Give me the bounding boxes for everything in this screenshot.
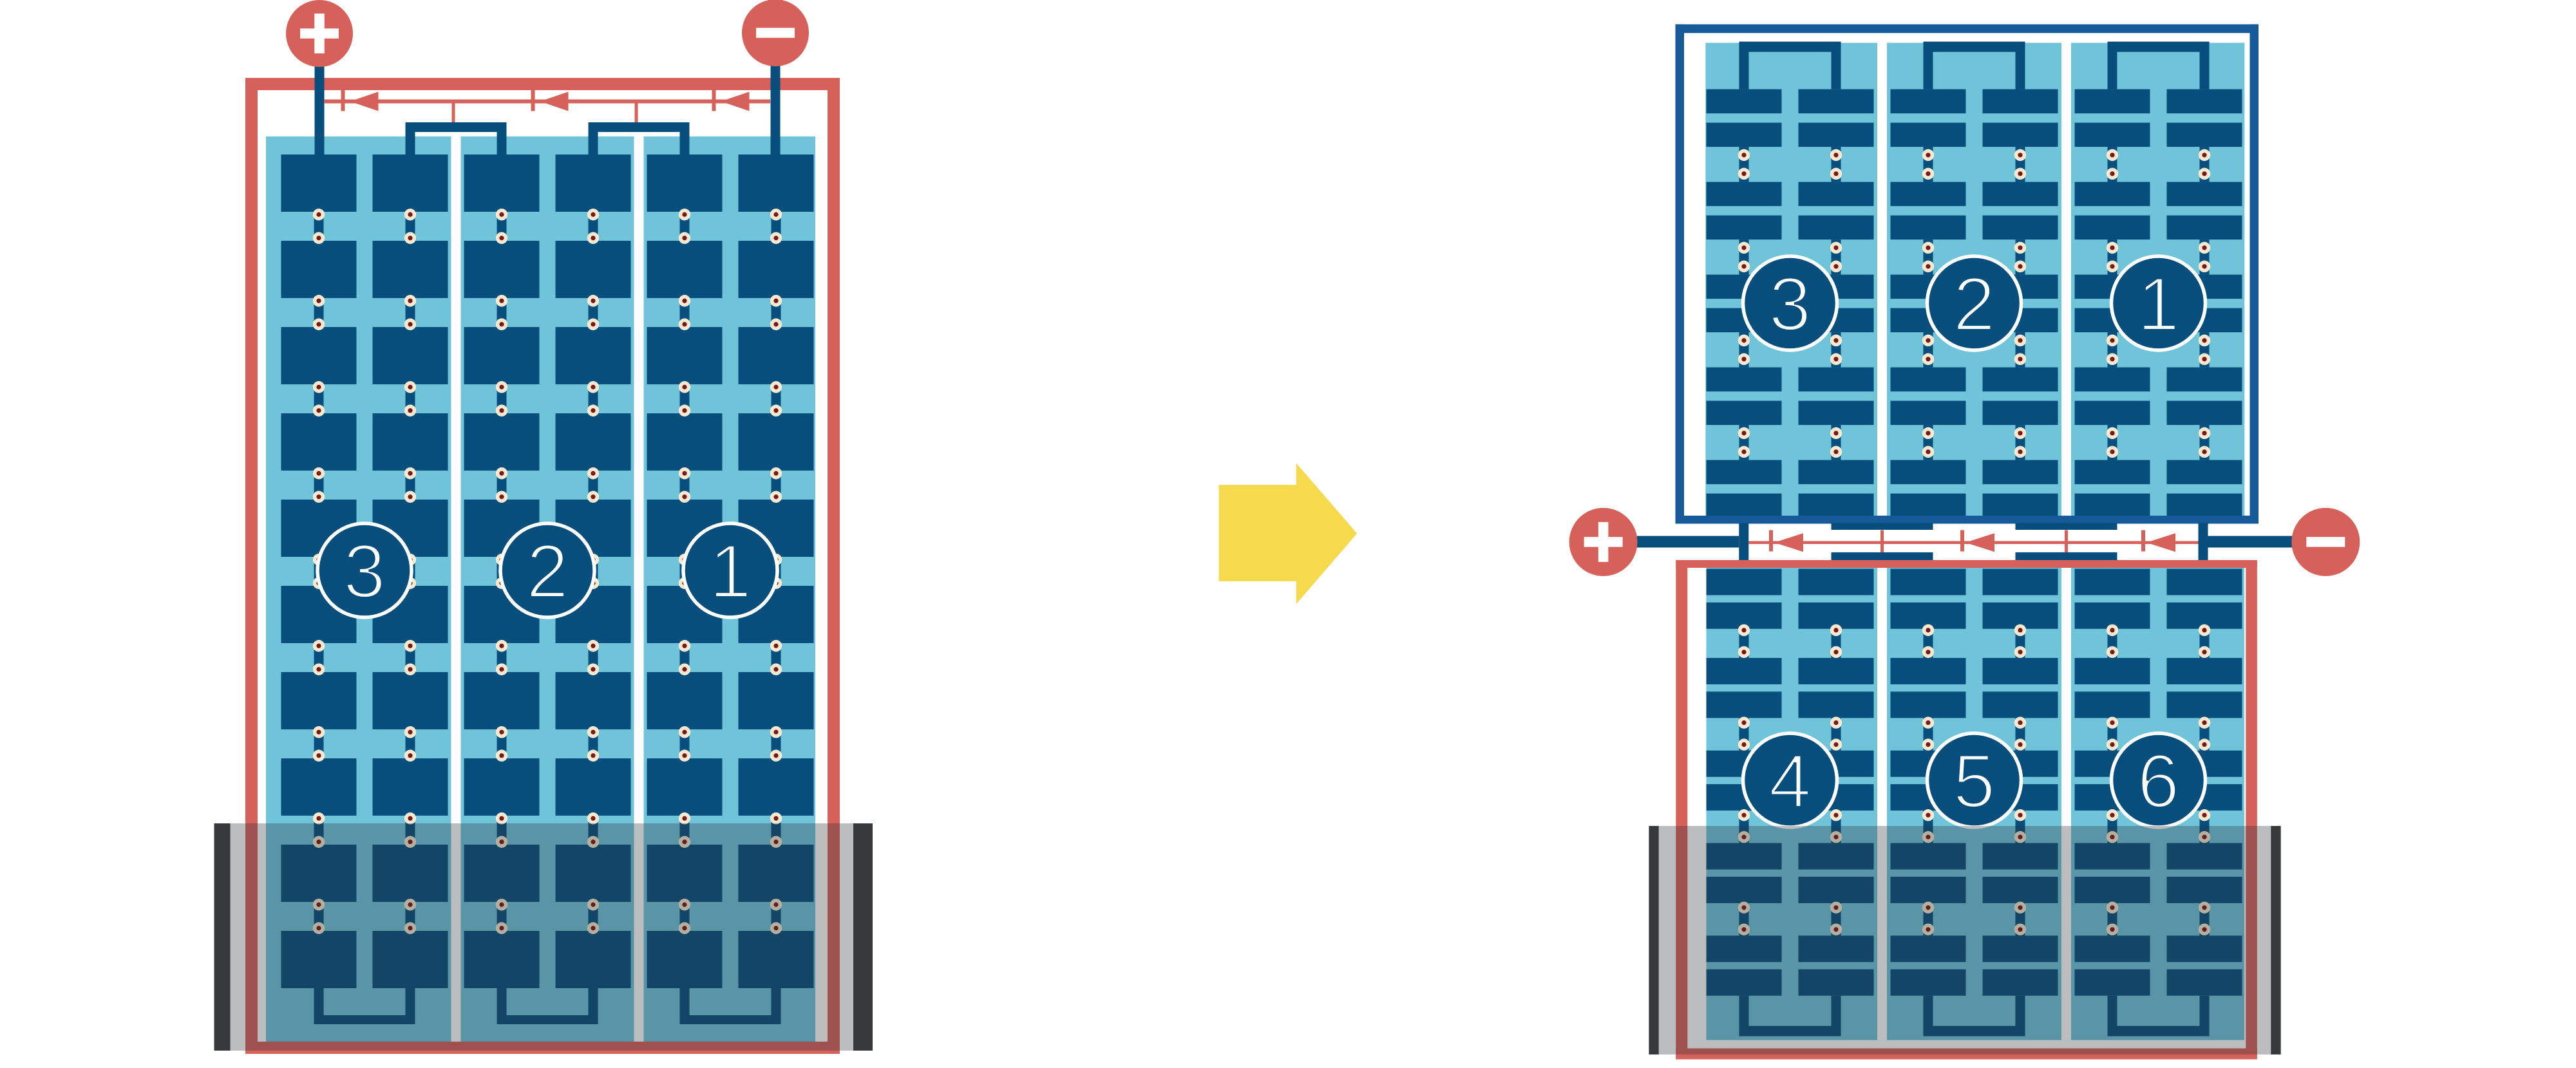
svg-text:2: 2 (1953, 262, 1996, 347)
svg-text:2: 2 (526, 529, 569, 614)
svg-text:1: 1 (709, 529, 752, 614)
svg-text:1: 1 (2137, 262, 2180, 347)
svg-text:5: 5 (1953, 739, 1996, 824)
svg-text:3: 3 (343, 529, 386, 614)
svg-text:3: 3 (1769, 262, 1812, 347)
svg-text:4: 4 (1769, 739, 1812, 824)
svg-text:6: 6 (2137, 739, 2180, 824)
